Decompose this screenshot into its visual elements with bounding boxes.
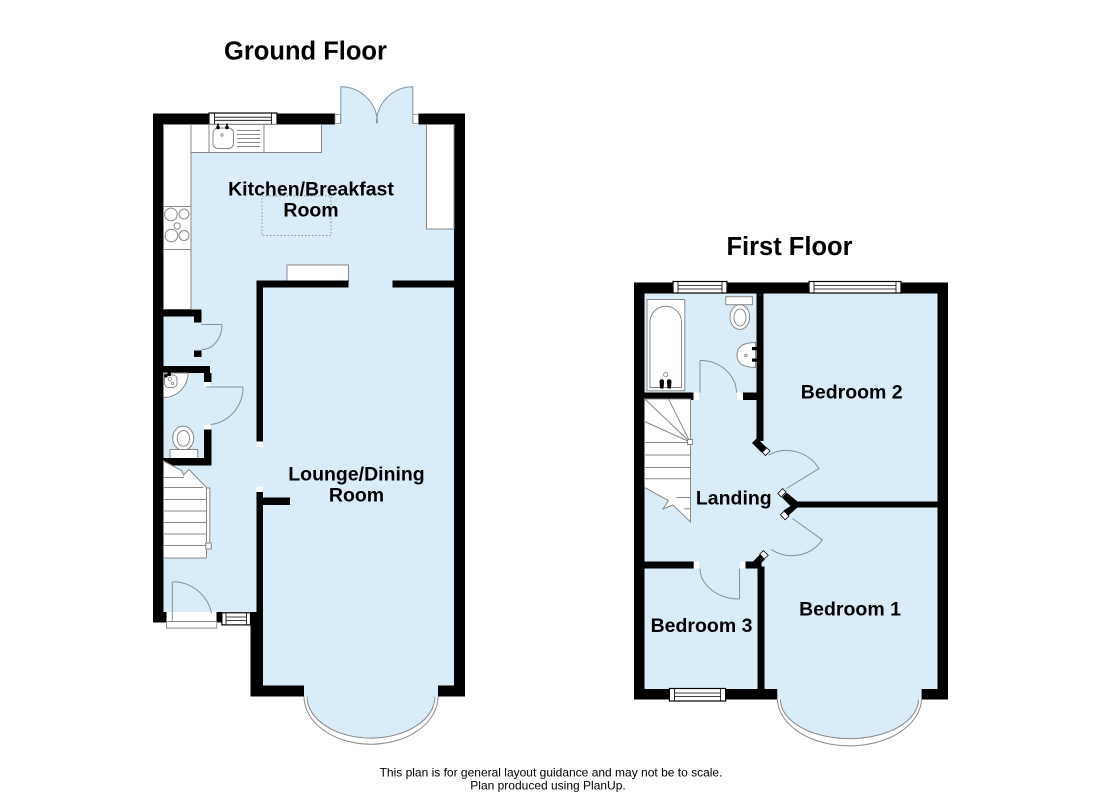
svg-text:This plan is for general layou: This plan is for general layout guidance… [380, 766, 723, 780]
svg-text:Ground Floor: Ground Floor [224, 38, 387, 66]
svg-text:Plan produced using PlanUp.: Plan produced using PlanUp. [470, 779, 625, 793]
svg-text:Bedroom 2: Bedroom 2 [801, 381, 903, 403]
svg-text:Bedroom 1: Bedroom 1 [799, 599, 901, 621]
svg-text:Lounge/Dining: Lounge/Dining [288, 464, 424, 486]
svg-text:Bedroom 3: Bedroom 3 [651, 615, 753, 637]
svg-text:Room: Room [329, 485, 384, 507]
svg-text:First Floor: First Floor [726, 233, 852, 261]
svg-text:Landing: Landing [696, 487, 772, 509]
svg-text:Kitchen/Breakfast: Kitchen/Breakfast [228, 179, 394, 201]
svg-text:Room: Room [283, 200, 338, 222]
